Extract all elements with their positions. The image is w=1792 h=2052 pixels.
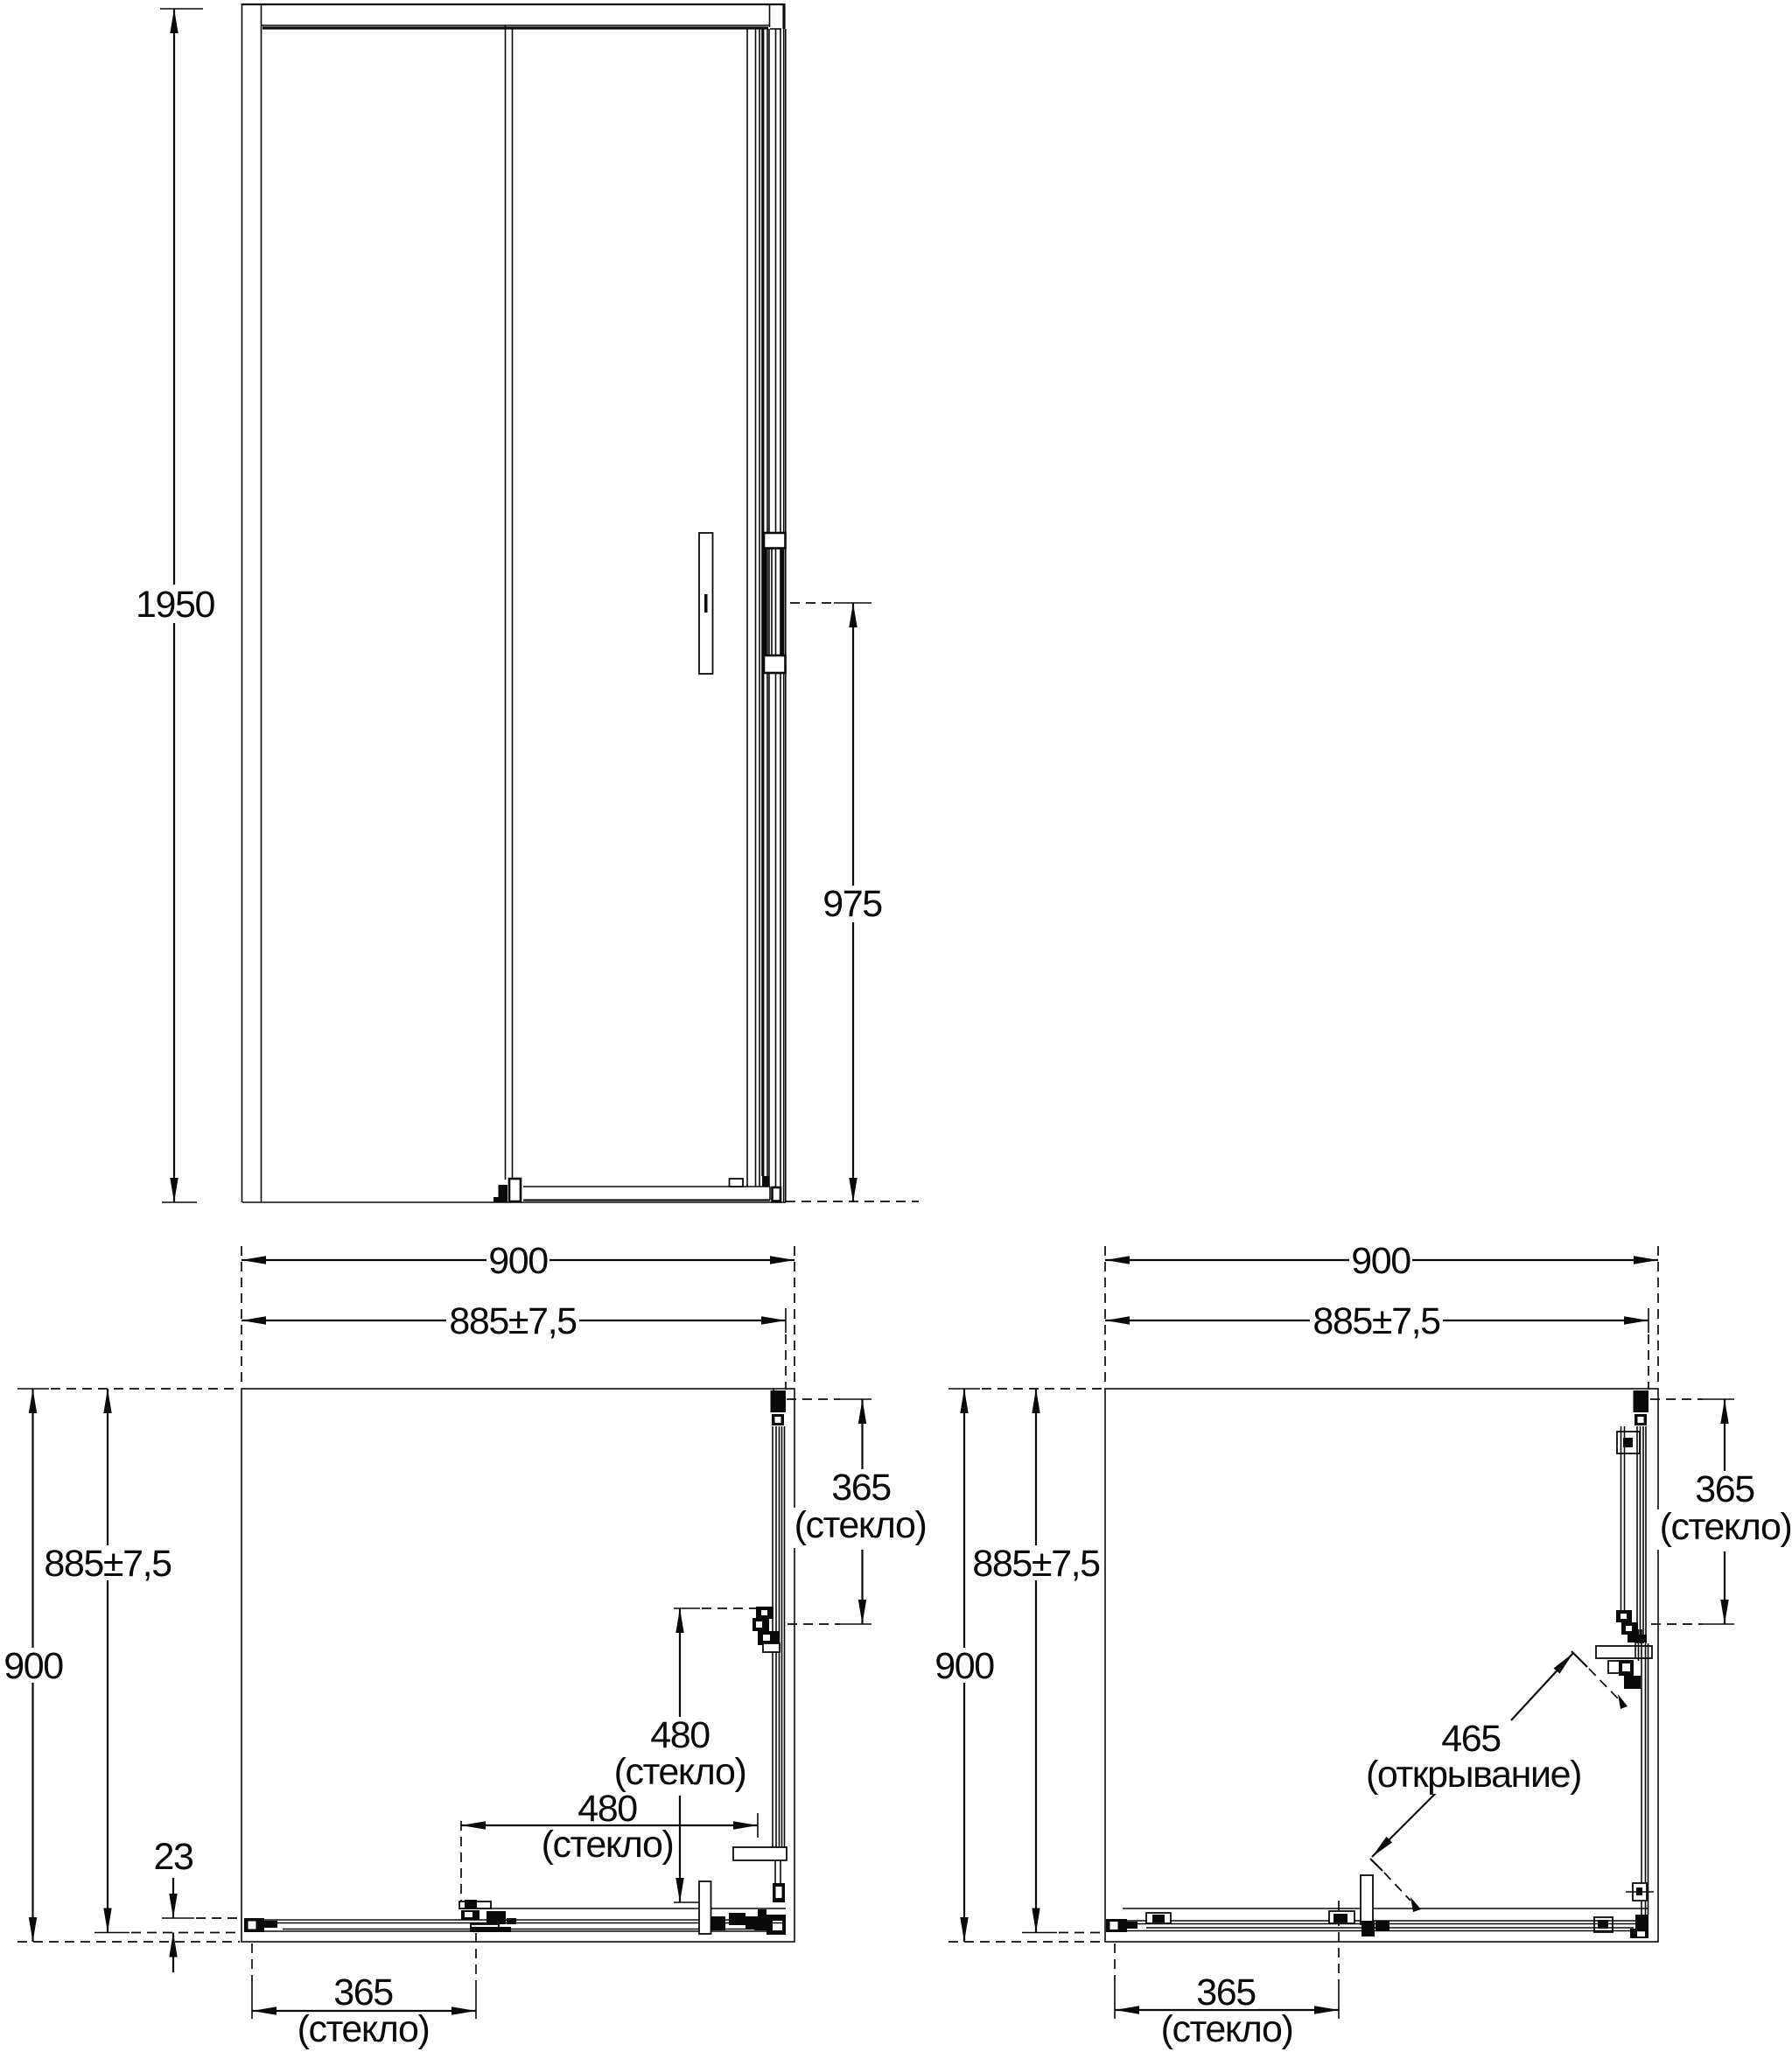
svg-text:365: 365 — [1196, 1971, 1256, 2013]
svg-text:365: 365 — [333, 1971, 393, 2013]
svg-text:(стекло): (стекло) — [1660, 1506, 1792, 1548]
svg-text:(стекло): (стекло) — [794, 1504, 927, 1546]
svg-text:885±7,5: 885±7,5 — [44, 1543, 171, 1585]
svg-text:900: 900 — [1351, 1240, 1410, 1282]
svg-text:885±7,5: 885±7,5 — [972, 1543, 1100, 1585]
svg-text:885±7,5: 885±7,5 — [1312, 1300, 1440, 1342]
svg-text:(стекло): (стекло) — [614, 1751, 746, 1793]
svg-text:(стекло): (стекло) — [1161, 2008, 1293, 2050]
svg-text:365: 365 — [831, 1467, 891, 1509]
svg-text:480: 480 — [650, 1714, 710, 1756]
svg-text:(открывание): (открывание) — [1366, 1754, 1581, 1796]
svg-text:900: 900 — [488, 1240, 548, 1282]
svg-text:365: 365 — [1695, 1468, 1754, 1510]
svg-text:(стекло): (стекло) — [297, 2008, 430, 2050]
svg-text:900: 900 — [3, 1645, 63, 1687]
svg-text:1950: 1950 — [136, 584, 215, 626]
svg-text:900: 900 — [934, 1645, 994, 1687]
svg-text:885±7,5: 885±7,5 — [449, 1300, 577, 1342]
svg-text:23: 23 — [153, 1836, 193, 1878]
svg-text:975: 975 — [822, 883, 882, 925]
svg-text:(стекло): (стекло) — [542, 1824, 674, 1866]
